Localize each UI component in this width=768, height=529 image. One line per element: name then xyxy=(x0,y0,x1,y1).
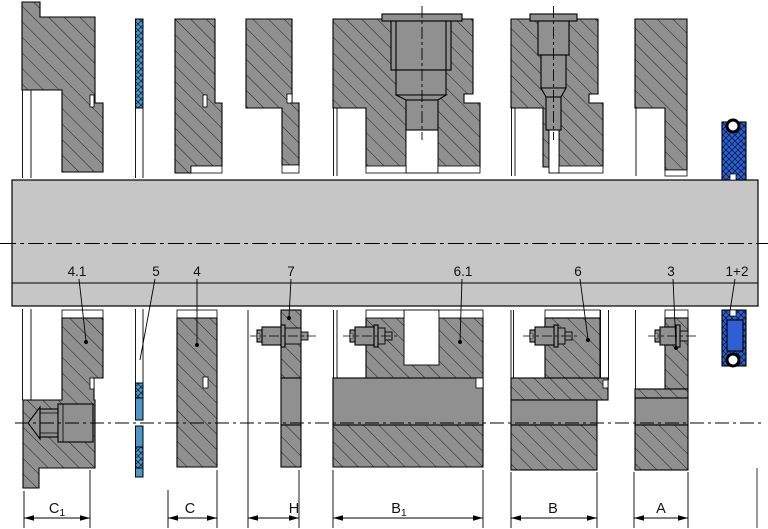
seal-1-2-top xyxy=(722,120,746,180)
label-5: 5 xyxy=(152,264,160,279)
dim-b: B xyxy=(548,501,558,517)
label-4: 4 xyxy=(193,264,201,279)
label-6: 6 xyxy=(574,264,582,279)
dim-h: H xyxy=(289,501,299,517)
assembly-drawing: 4.1 5 4 7 6.1 6 3 1+2 xyxy=(0,0,768,529)
label-1-2: 1+2 xyxy=(726,264,749,279)
dim-a: A xyxy=(656,501,666,517)
o-ring-section xyxy=(727,120,739,132)
o-ring-section xyxy=(727,354,739,366)
cover-4-top xyxy=(175,19,222,173)
label-3: 3 xyxy=(667,264,675,279)
dim-c: C xyxy=(185,501,195,517)
label-6-1: 6.1 xyxy=(454,264,473,279)
label-7: 7 xyxy=(287,264,295,279)
label-4-1: 4.1 xyxy=(68,264,87,279)
seal-1-2-bottom xyxy=(722,310,746,366)
